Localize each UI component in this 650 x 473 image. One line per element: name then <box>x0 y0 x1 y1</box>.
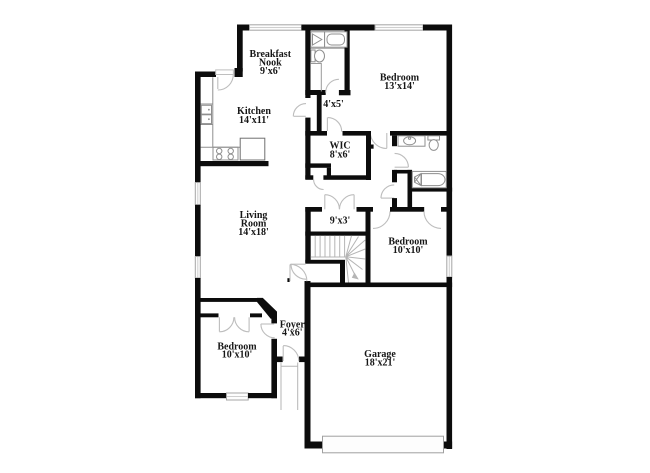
svg-text:4'x5': 4'x5' <box>323 99 344 110</box>
svg-text:4'x6': 4'x6' <box>282 327 303 338</box>
svg-text:8'x6': 8'x6' <box>330 150 351 161</box>
svg-text:13'x14': 13'x14' <box>384 81 415 92</box>
svg-text:14'x11': 14'x11' <box>239 115 269 126</box>
svg-text:10'x10': 10'x10' <box>393 245 424 256</box>
svg-text:9'x3': 9'x3' <box>330 216 351 227</box>
svg-text:14'x18': 14'x18' <box>238 227 269 238</box>
svg-text:18'x21': 18'x21' <box>365 357 396 368</box>
svg-text:10'x10': 10'x10' <box>222 350 253 361</box>
svg-text:9'x6': 9'x6' <box>260 66 281 77</box>
